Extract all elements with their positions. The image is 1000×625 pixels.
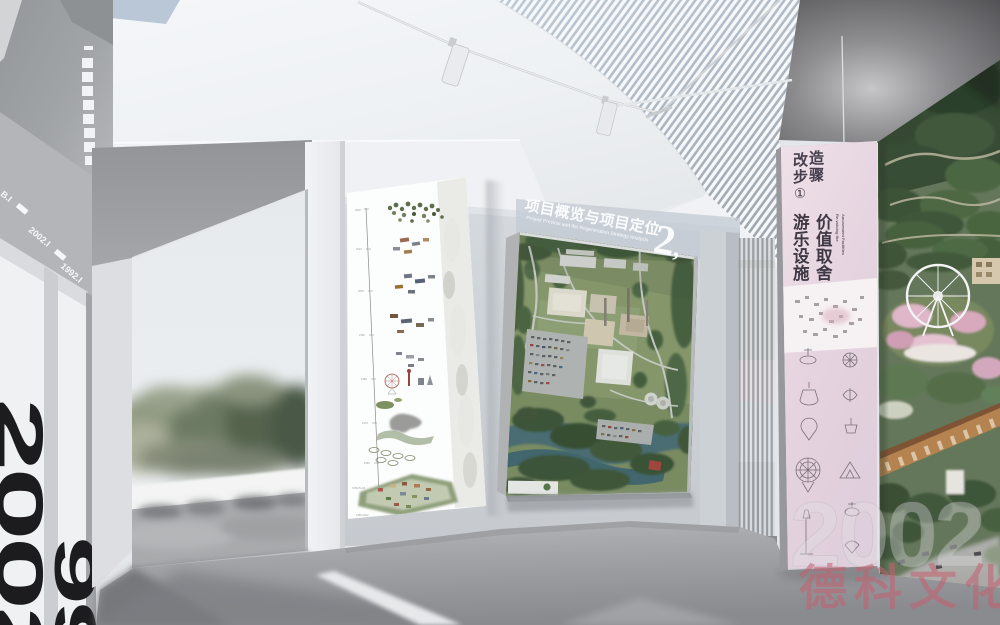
svg-text:①: ① (794, 186, 806, 201)
svg-text:德科文化: 德科文化 (799, 562, 1000, 615)
svg-text:SITE PLAN: SITE PLAN (352, 486, 365, 490)
svg-text:1960: 1960 (364, 461, 370, 465)
svg-text:设: 设 (793, 247, 810, 266)
svg-text:值: 值 (816, 229, 833, 249)
svg-text:取: 取 (816, 247, 833, 266)
svg-text:1970: 1970 (362, 421, 368, 425)
svg-text:改: 改 (793, 151, 809, 169)
svg-text:Amusement Facilities: Amusement Facilities (841, 214, 846, 256)
svg-text:2020: 2020 (355, 208, 361, 212)
svg-text:施: 施 (793, 263, 810, 283)
svg-text:2000: 2000 (358, 289, 364, 293)
svg-text:1990: 1990 (359, 333, 365, 337)
svg-text:1980: 1980 (361, 377, 367, 381)
svg-text:步: 步 (793, 169, 808, 186)
svg-text:游: 游 (793, 212, 810, 232)
svg-text:骤: 骤 (809, 167, 824, 184)
svg-text:价: 价 (816, 213, 833, 232)
svg-text:1955-2022: 1955-2022 (356, 513, 369, 517)
svg-text:造: 造 (809, 149, 824, 167)
svg-text:乐: 乐 (793, 230, 810, 249)
svg-text:2010: 2010 (356, 247, 362, 251)
svg-text:舍: 舍 (816, 263, 833, 283)
svg-text:Re-valuing the: Re-valuing the (835, 214, 840, 242)
